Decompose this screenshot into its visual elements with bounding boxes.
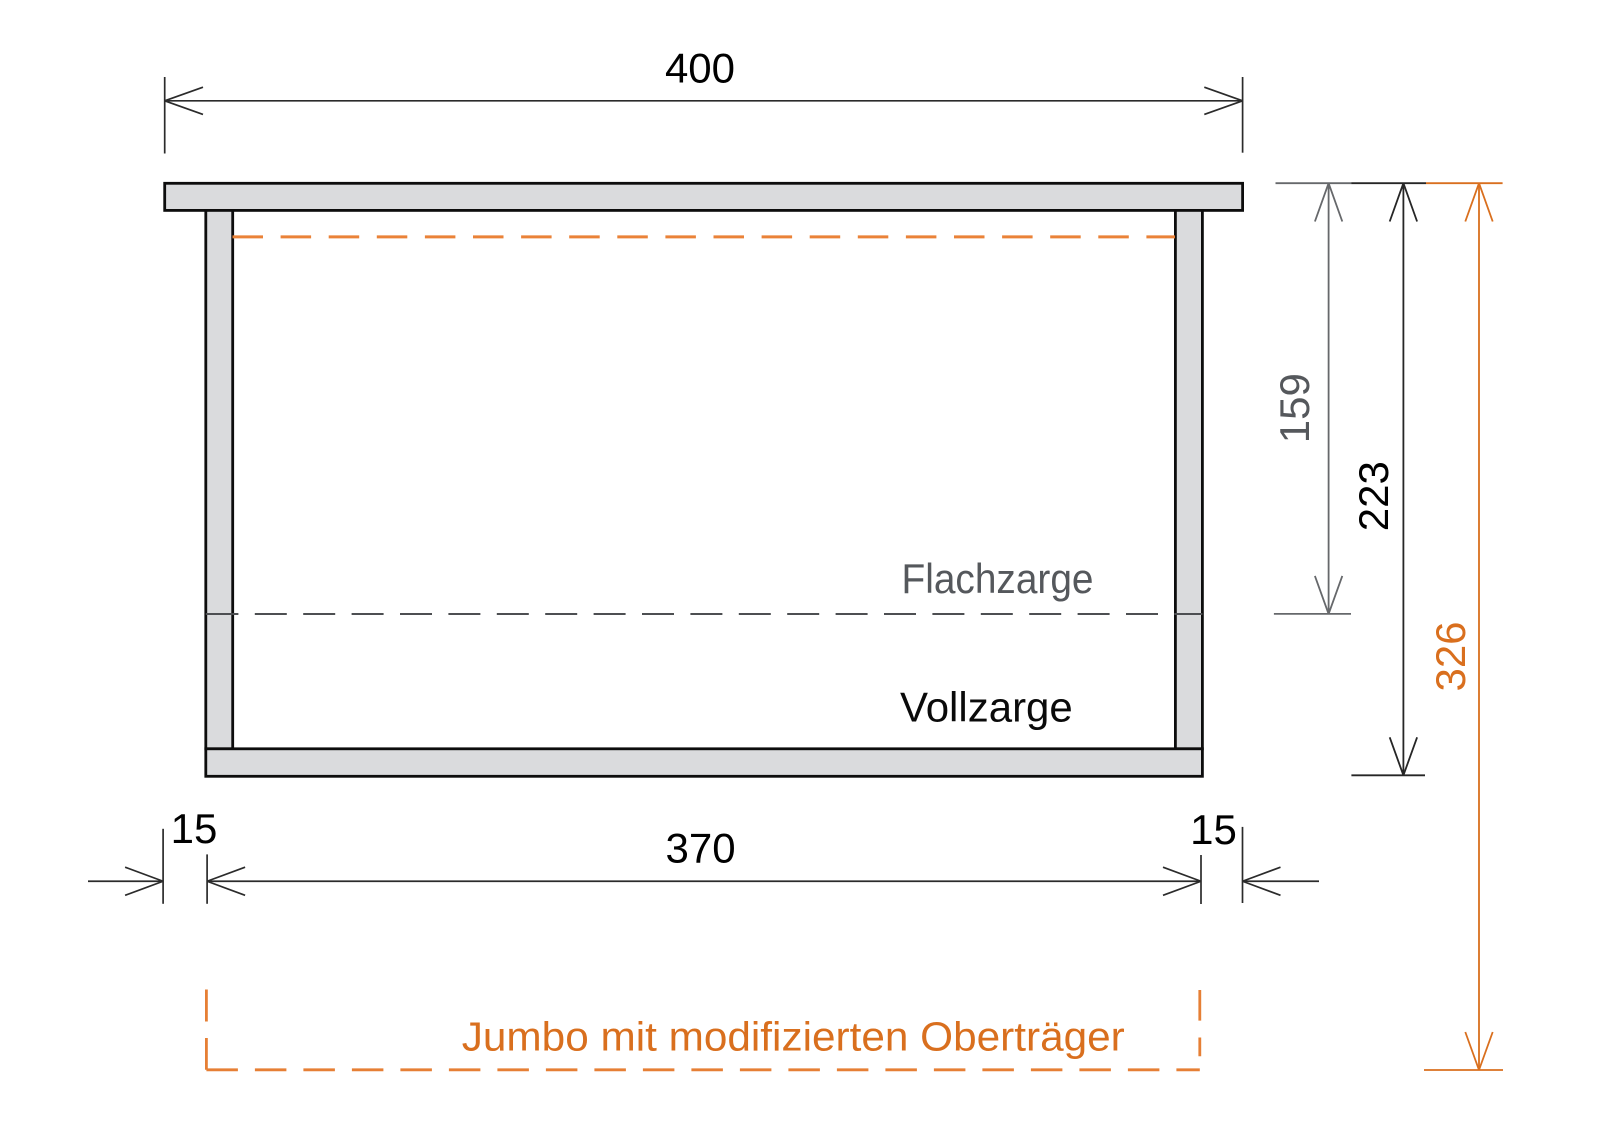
svg-text:159: 159 xyxy=(1271,373,1318,443)
svg-text:223: 223 xyxy=(1350,461,1397,531)
svg-text:Vollzarge: Vollzarge xyxy=(900,684,1073,731)
svg-text:400: 400 xyxy=(665,44,735,91)
svg-text:370: 370 xyxy=(666,824,736,871)
svg-text:15: 15 xyxy=(1190,806,1237,853)
svg-text:Flachzarge: Flachzarge xyxy=(902,555,1094,602)
svg-text:326: 326 xyxy=(1427,621,1474,691)
svg-text:15: 15 xyxy=(171,805,218,852)
svg-text:Jumbo mit modifizierten Obertr: Jumbo mit modifizierten Oberträger xyxy=(462,1014,1125,1060)
